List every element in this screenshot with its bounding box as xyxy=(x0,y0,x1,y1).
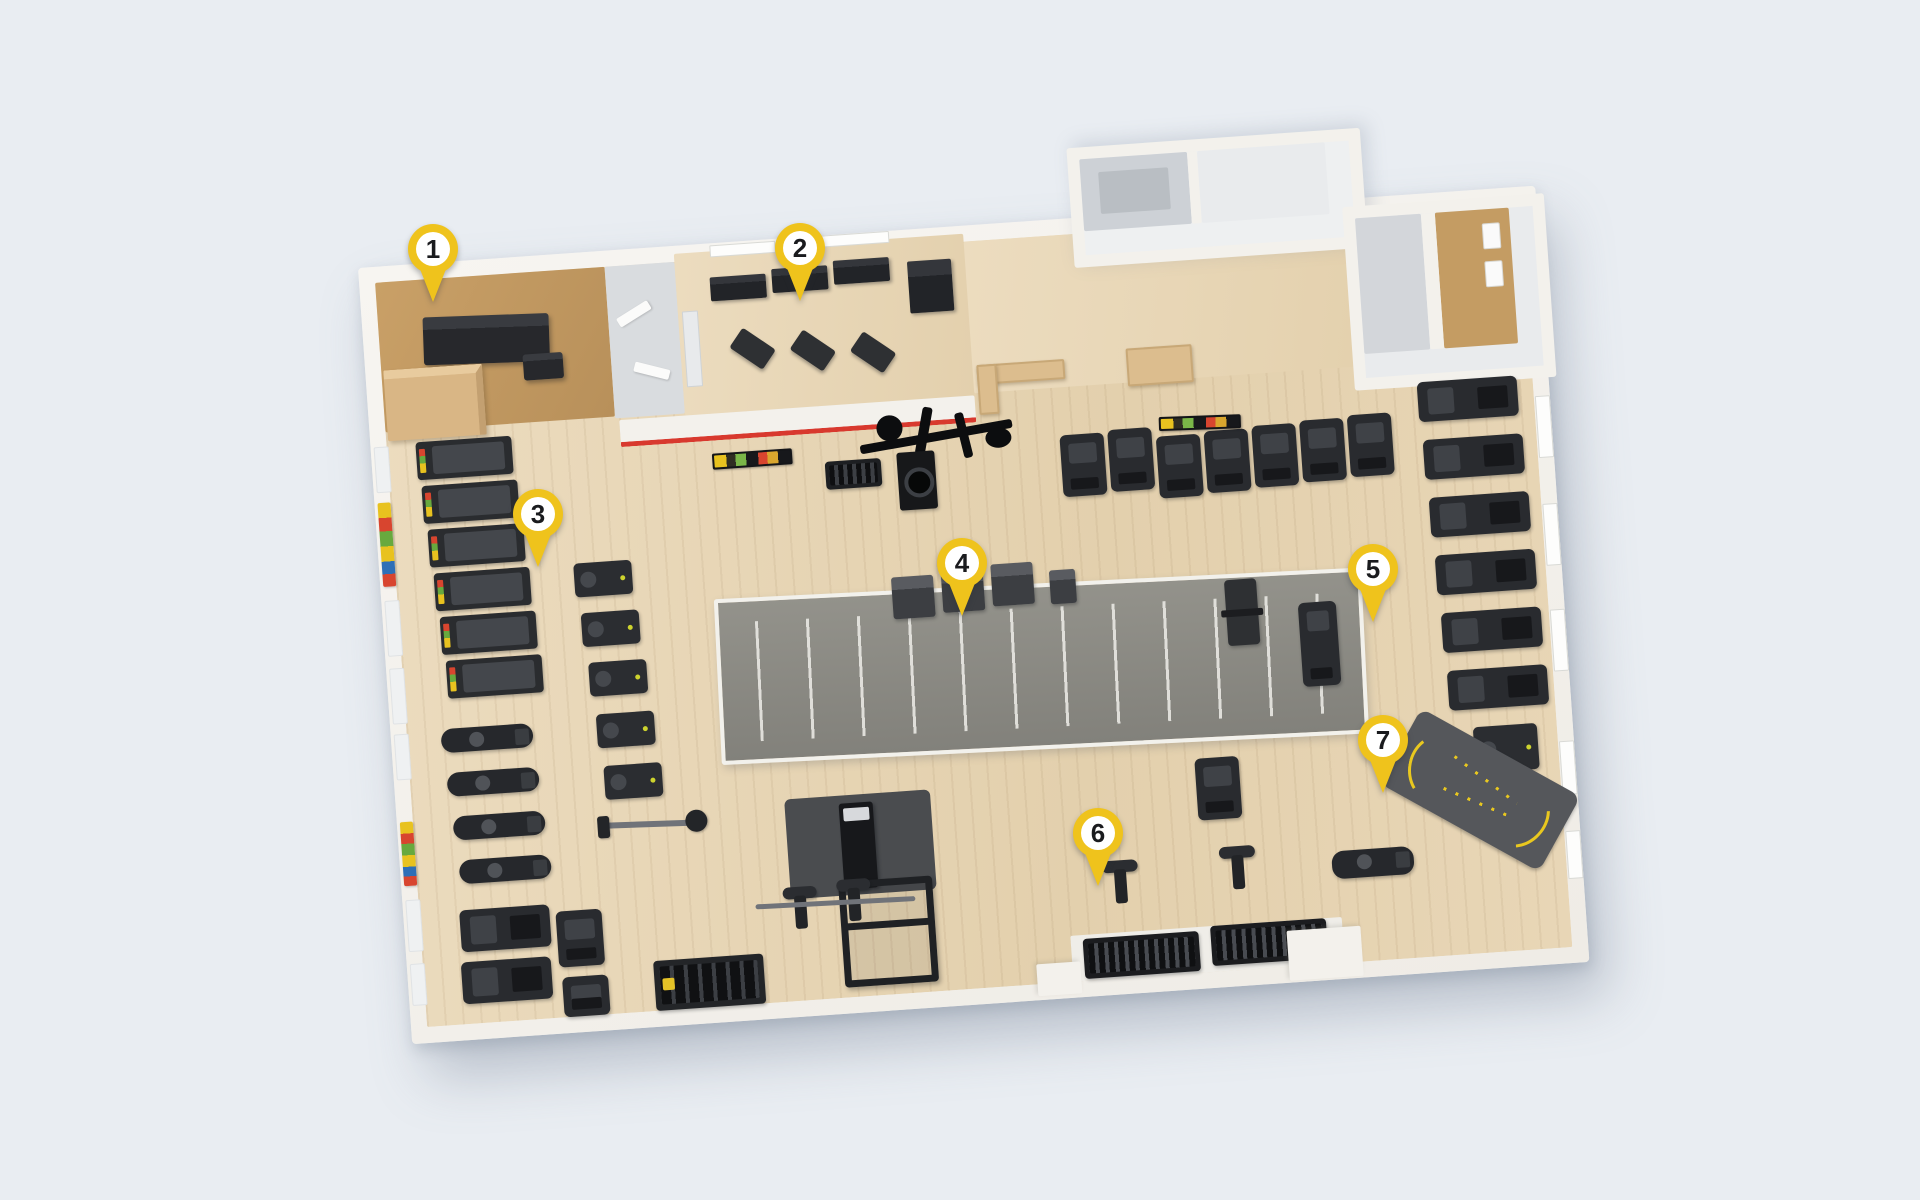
functional-trainer xyxy=(1107,427,1155,492)
barbell-storage-rack xyxy=(653,953,766,1011)
reception-desk xyxy=(1125,344,1193,387)
barbell-bar xyxy=(597,820,693,829)
rig-base xyxy=(985,427,1012,449)
plyo-box xyxy=(990,562,1035,607)
pin-circle: 7 xyxy=(1358,715,1408,765)
functional-trainer xyxy=(1347,412,1395,477)
strength-machine xyxy=(461,956,554,1004)
plate-loaded-machine xyxy=(1435,549,1538,596)
pin-circle: 5 xyxy=(1348,544,1398,594)
pin-inner-circle: 1 xyxy=(416,232,450,266)
entry-vestibule xyxy=(1286,926,1363,981)
right-wall-window xyxy=(1550,609,1569,672)
treadmill xyxy=(421,479,519,524)
plate-loaded-machine xyxy=(1417,375,1520,422)
strength-machine xyxy=(562,974,611,1017)
pin-inner-circle: 3 xyxy=(521,497,555,531)
selectorized-machine xyxy=(596,710,656,748)
wall-window-panel xyxy=(374,446,392,493)
locker-room-block xyxy=(1066,128,1368,268)
door-leaf xyxy=(633,362,670,380)
kettlebell-rack xyxy=(825,458,883,490)
functional-trainer xyxy=(1156,434,1204,499)
washroom-block xyxy=(1342,193,1556,391)
functional-trainer xyxy=(1203,428,1251,493)
plate-loaded-machine xyxy=(1423,433,1526,480)
door-opening xyxy=(1036,961,1082,996)
pin-inner-circle: 6 xyxy=(1081,816,1115,850)
pin-number: 2 xyxy=(793,235,807,261)
selectorized-machine xyxy=(588,659,648,697)
prowler-sled xyxy=(1224,578,1261,646)
shower-tile xyxy=(1098,167,1171,214)
pin-circle: 1 xyxy=(408,224,458,274)
office-wood-cabinet xyxy=(383,364,487,442)
pin-number: 4 xyxy=(955,550,969,576)
adjustable-bench xyxy=(1219,845,1258,893)
map-pin-1[interactable]: 1 xyxy=(408,224,458,302)
studio-bench xyxy=(790,329,837,371)
plyo-box-small xyxy=(1049,569,1077,605)
map-pin-3[interactable]: 3 xyxy=(513,489,563,567)
treadmill xyxy=(433,567,531,612)
map-pin-2[interactable]: 2 xyxy=(775,223,825,301)
pin-number: 3 xyxy=(531,501,545,527)
pin-number: 6 xyxy=(1091,820,1105,846)
plyo-box xyxy=(891,575,936,620)
treadmill xyxy=(446,654,544,699)
toilet-fixture xyxy=(1484,260,1504,287)
locker-room-white-floor xyxy=(1197,142,1330,223)
door-leaf xyxy=(616,300,652,328)
map-pin-6[interactable]: 6 xyxy=(1073,808,1123,886)
map-pin-7[interactable]: 7 xyxy=(1358,715,1408,793)
toilet-fixture xyxy=(1482,222,1502,249)
wall-window-panel xyxy=(394,734,412,781)
washroom-cork-floor xyxy=(1435,208,1518,349)
right-wall-window xyxy=(1565,830,1583,879)
functional-trainer xyxy=(1299,418,1347,483)
pin-number: 1 xyxy=(426,236,440,262)
pin-inner-circle: 7 xyxy=(1366,723,1400,757)
handle-base xyxy=(597,816,611,839)
studio-bench xyxy=(850,331,897,373)
pin-circle: 6 xyxy=(1073,808,1123,858)
treadmill xyxy=(415,436,513,481)
cable-pull-machine xyxy=(1194,756,1242,821)
studio-cabinet xyxy=(833,257,891,285)
studio-folding-screen xyxy=(682,310,703,387)
treadmill xyxy=(440,610,538,655)
pin-inner-circle: 4 xyxy=(945,546,979,580)
selectorized-machine xyxy=(603,762,663,800)
plate-loaded-machine xyxy=(1429,491,1532,538)
right-wall-window xyxy=(1535,395,1554,458)
plate-loaded-machine xyxy=(1441,606,1544,653)
right-wall-window xyxy=(1542,503,1561,566)
washroom-gray-floor xyxy=(1355,214,1430,354)
pin-inner-circle: 5 xyxy=(1356,552,1390,586)
corridor xyxy=(605,262,685,419)
office-desk-return xyxy=(522,352,564,381)
strength-machine xyxy=(555,909,605,968)
selectorized-machine xyxy=(581,609,641,647)
squat-stand xyxy=(782,886,819,932)
functional-trainer xyxy=(1251,423,1299,488)
studio-cabinet xyxy=(710,274,768,302)
selectorized-machine xyxy=(573,560,633,598)
functional-trainer xyxy=(1059,432,1107,497)
studio-storage-unit xyxy=(907,259,955,314)
dumbbell-rack xyxy=(1083,931,1202,979)
wall-window-panel xyxy=(410,963,428,1006)
pin-circle: 3 xyxy=(513,489,563,539)
rig-arm xyxy=(915,406,933,455)
flat-bench xyxy=(1331,846,1415,880)
gym-floorplan-scene: 1 2 3 4 5 6 7 xyxy=(0,0,1920,1200)
treadmill xyxy=(427,523,525,568)
pin-number: 5 xyxy=(1366,556,1380,582)
turf-track xyxy=(714,568,1369,765)
plate-loaded-machine xyxy=(1447,664,1550,711)
weight-plate xyxy=(685,809,708,832)
brand-signage-board xyxy=(1159,414,1241,431)
pin-number: 7 xyxy=(1376,727,1390,753)
map-pin-4[interactable]: 4 xyxy=(937,538,987,616)
map-pin-5[interactable]: 5 xyxy=(1348,544,1398,622)
pin-circle: 4 xyxy=(937,538,987,588)
pin-inner-circle: 2 xyxy=(783,231,817,265)
heavy-bag-station xyxy=(896,450,938,511)
bench-station xyxy=(1298,601,1342,687)
studio-bench xyxy=(729,328,776,370)
cable-tower xyxy=(839,801,879,889)
pin-circle: 2 xyxy=(775,223,825,273)
strength-machine xyxy=(459,904,552,952)
